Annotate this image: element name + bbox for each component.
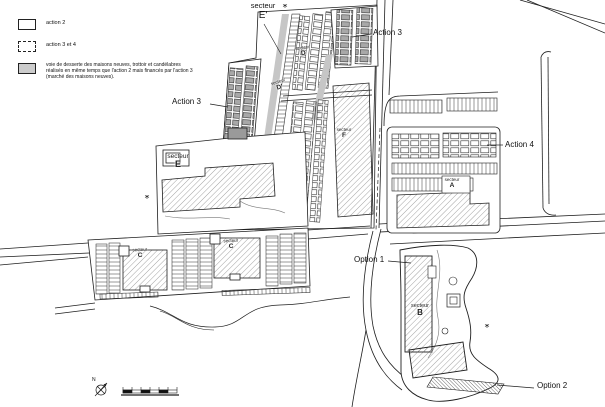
block-secteur-e	[156, 128, 308, 234]
houses-middle	[172, 238, 212, 290]
callout-action4: Action 4	[505, 140, 534, 149]
legend-label: action 3 et 4	[46, 40, 76, 49]
callout-action3-north: Action 3	[373, 28, 402, 37]
label-secteur-a: secteur A	[437, 177, 467, 189]
legend-swatch-action2	[18, 19, 36, 30]
site-plan-page: action 2 action 3 et 4 voie de desserte …	[0, 0, 605, 407]
label-secteur-b: secteur B	[403, 303, 437, 317]
block-action3-north	[331, 6, 378, 68]
scale-bar	[121, 387, 179, 395]
label-secteur-e-prime: secteur E'	[245, 2, 281, 21]
block-secteur-c	[88, 228, 310, 300]
label-secteur-f: secteur F	[329, 127, 359, 139]
legend-item-voie: voie de desserte des maisons neuves, tro…	[18, 62, 208, 81]
building-secteur-f	[333, 83, 373, 217]
legend-swatch-voie	[18, 63, 36, 74]
callout-action3-west: Action 3	[172, 97, 201, 106]
legend-label: action 2	[46, 18, 65, 27]
label-secteur-c-west: secteur C	[125, 246, 156, 260]
block-option-secteur-b	[388, 245, 534, 401]
legend: action 2 action 3 et 4 voie de desserte …	[18, 18, 208, 91]
label-secteur-e: secteur E	[160, 153, 196, 169]
legend-swatch-action34	[18, 41, 36, 52]
callout-option2: Option 2	[537, 381, 567, 390]
block-action4	[384, 92, 503, 233]
north-arrow	[95, 383, 107, 396]
callout-option1: Option 1	[354, 255, 384, 264]
label-secteur-c-east: secteur C	[216, 237, 247, 251]
legend-item-action34: action 3 et 4	[18, 40, 208, 52]
north-label: N	[92, 377, 96, 383]
legend-label: voie de desserte des maisons neuves, tro…	[46, 62, 198, 81]
houses-east	[266, 233, 306, 286]
legend-item-action2: action 2	[18, 18, 208, 30]
